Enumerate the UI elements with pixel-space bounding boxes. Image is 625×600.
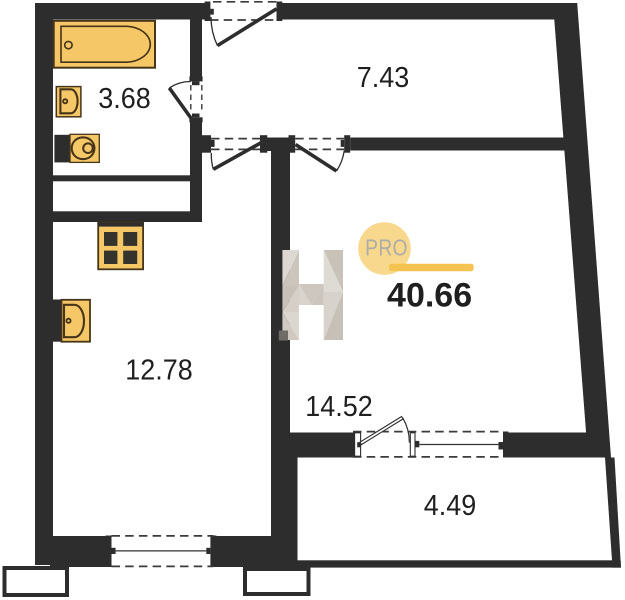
svg-text:14.52: 14.52 bbox=[305, 390, 372, 422]
svg-text:4.49: 4.49 bbox=[424, 489, 476, 521]
svg-text:12.78: 12.78 bbox=[125, 354, 192, 386]
svg-text:7.43: 7.43 bbox=[357, 61, 409, 93]
svg-text:40.66: 40.66 bbox=[387, 277, 472, 315]
svg-text:3.68: 3.68 bbox=[98, 82, 150, 114]
svg-text:PRO: PRO bbox=[365, 235, 408, 261]
